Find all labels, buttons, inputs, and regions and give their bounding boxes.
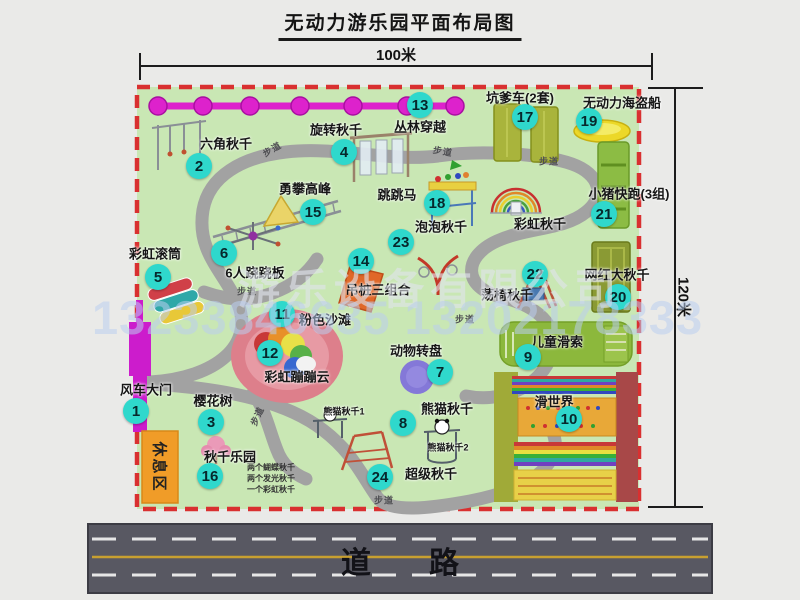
attraction-14-badge[interactable]: 14 — [348, 248, 374, 274]
attraction-15-badge[interactable]: 15 — [300, 199, 326, 225]
attraction-8-badge[interactable]: 8 — [390, 410, 416, 436]
width-dimension-label: 100米 — [376, 44, 416, 65]
attraction-21-badge[interactable]: 21 — [591, 201, 617, 227]
attraction-10-badge[interactable]: 10 — [556, 406, 582, 432]
attraction-5-label: 彩虹滚筒 — [129, 244, 181, 263]
attraction-18-label: 跳跳马 — [377, 185, 416, 204]
page-title: 无动力游乐园平面布局图 — [278, 8, 521, 41]
attraction-6-badge[interactable]: 6 — [211, 240, 237, 266]
attraction-8-label: 熊猫秋千 — [421, 399, 473, 418]
attraction-22-label: 荡椅秋千 — [481, 285, 533, 304]
attraction-1-badge[interactable]: 1 — [123, 398, 149, 424]
attraction-7-badge[interactable]: 7 — [427, 359, 453, 385]
attraction-6-label: 6人跷跷板 — [225, 263, 284, 282]
attraction-22-badge[interactable]: 22 — [522, 261, 548, 287]
height-dimension-label: 120米 — [674, 277, 695, 317]
attraction-4-label: 旋转秋千 — [310, 120, 362, 139]
attraction-14-label: 吊桩三组合 — [345, 280, 410, 299]
panda-swing-2-label: 熊猫秋千2 — [427, 441, 468, 454]
attraction-21-label: 小猪快跑(3组) — [589, 184, 670, 203]
attraction-3-badge[interactable]: 3 — [198, 409, 224, 435]
road-label: 道路 — [88, 538, 712, 582]
attraction-19-badge[interactable]: 19 — [576, 108, 602, 134]
attraction-7-label: 动物转盘 — [390, 341, 442, 360]
walkway-label: 步道 — [237, 285, 257, 298]
walkway-label: 步道 — [455, 313, 475, 326]
attraction-11-badge[interactable]: 11 — [269, 301, 295, 327]
attraction-16-badge[interactable]: 16 — [197, 463, 223, 489]
rest-area-label: 休息区 — [150, 441, 171, 492]
attraction-11-label: 粉色沙滩 — [299, 310, 351, 329]
swing-paradise-item: 一个彩虹秋千 — [247, 484, 295, 495]
walkway-label: 步道 — [539, 155, 559, 168]
attraction-20-badge[interactable]: 20 — [605, 284, 631, 310]
attraction-13-badge[interactable]: 13 — [407, 92, 433, 118]
attraction-2-label: 六角秋千 — [200, 134, 252, 153]
panda-swing-1-label: 熊猫秋千1 — [323, 405, 364, 418]
attraction-9-badge[interactable]: 9 — [515, 344, 541, 370]
attraction-4-badge[interactable]: 4 — [331, 139, 357, 165]
attraction-12-badge[interactable]: 12 — [257, 340, 283, 366]
walkway-label: 步道 — [374, 494, 394, 507]
swing-paradise-item: 两个发光秋千 — [247, 473, 295, 484]
attraction-13-label: 丛林穿越 — [394, 117, 446, 136]
attraction-2-badge[interactable]: 2 — [186, 153, 212, 179]
attraction-12-label: 彩虹蹦蹦云 — [264, 367, 329, 386]
attraction-17-badge[interactable]: 17 — [512, 104, 538, 130]
attraction-1-label: 风车大门 — [120, 380, 172, 399]
park-layout-map: 无动力游乐园平面布局图 100米 120米 休息区 游乐设备有限公司 13233… — [0, 0, 800, 600]
attraction-23-label: 泡泡秋千 — [415, 217, 467, 236]
swing-paradise-items: 两个蝴蝶秋千两个发光秋千一个彩虹秋千 — [247, 462, 295, 495]
rainbow-swing-label: 彩虹秋千 — [514, 214, 566, 233]
attraction-24-label: 超级秋千 — [405, 464, 457, 483]
attraction-20-label: 网红大秋千 — [584, 265, 649, 284]
attraction-5-badge[interactable]: 5 — [145, 264, 171, 290]
attraction-9-label: 儿童滑索 — [531, 332, 583, 351]
attraction-23-badge[interactable]: 23 — [388, 229, 414, 255]
attraction-3-label: 樱花树 — [193, 391, 232, 410]
slide-lanes-bottom — [514, 442, 616, 466]
attraction-15-label: 勇攀高峰 — [279, 179, 331, 198]
attraction-18-badge[interactable]: 18 — [424, 190, 450, 216]
attraction-24-badge[interactable]: 24 — [367, 464, 393, 490]
